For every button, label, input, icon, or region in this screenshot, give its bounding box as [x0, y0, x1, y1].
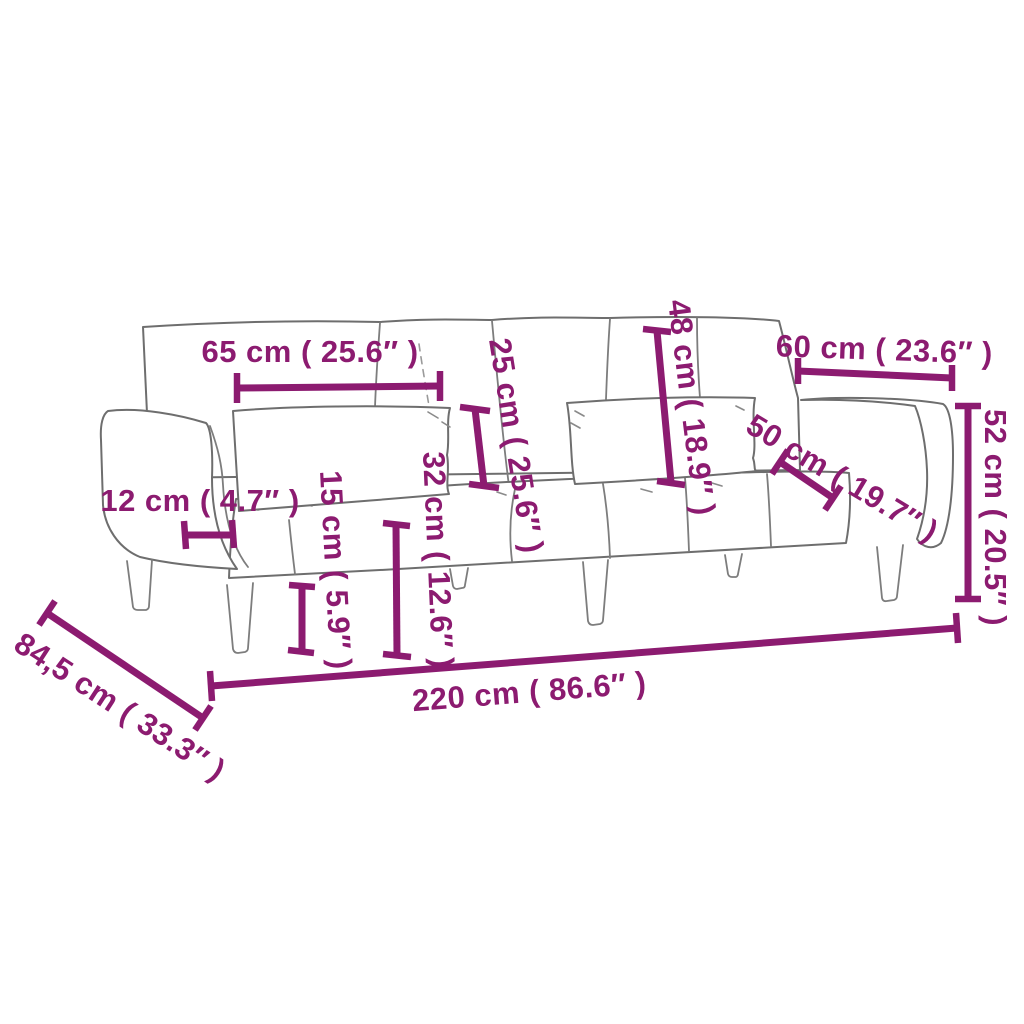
dimension-tick: [232, 520, 234, 548]
dim-label-52cm: 52 cm ( 20.5″ ): [978, 409, 1013, 626]
dimension-tick: [657, 481, 685, 485]
dimension-tick: [383, 523, 410, 526]
dimension-tick: [460, 407, 490, 411]
dim-label-220cm: 220 cm ( 86.6″ ): [411, 665, 648, 718]
dim-label-12cm: 12 cm ( 4.7″ ): [100, 483, 299, 518]
dimension-line: [798, 371, 952, 378]
dim-label-32cm: 32 cm ( 12.6″ ): [416, 451, 460, 669]
dimension-tick: [184, 521, 186, 549]
dimension-line: [237, 386, 440, 388]
dimension-tick: [469, 484, 499, 488]
dim-overall-depth: 84,5 cm ( 33.3″ ): [8, 601, 232, 788]
dimension-tick: [383, 654, 411, 657]
sofa-dimension-svg: 65 cm ( 25.6″ ) 25 cm ( 25.6″ ) 48 cm ( …: [0, 0, 1024, 1024]
dim-armrest-length: 60 cm ( 23.6″ ): [775, 328, 993, 391]
sofa-leg-back-right: [725, 554, 742, 577]
dimension-tick: [288, 650, 314, 653]
dim-label-84-5cm: 84,5 cm ( 33.3″ ): [8, 626, 232, 788]
dimension-line: [396, 525, 397, 655]
dim-armrest-height: 52 cm ( 20.5″ ): [955, 406, 1013, 626]
dimension-diagram: 65 cm ( 25.6″ ) 25 cm ( 25.6″ ) 48 cm ( …: [0, 0, 1024, 1024]
sofa-leg-front-left: [227, 583, 253, 653]
dim-label-65cm: 65 cm ( 25.6″ ): [201, 334, 418, 369]
dimension-tick: [956, 613, 958, 643]
dim-label-60cm: 60 cm ( 23.6″ ): [775, 328, 993, 371]
dimension-tick: [289, 585, 315, 587]
dimension-tick: [210, 671, 212, 701]
sofa-leg-front-center: [583, 560, 608, 625]
sofa-leg-front-right: [877, 545, 903, 601]
sofa-leg-back-left: [127, 560, 152, 610]
